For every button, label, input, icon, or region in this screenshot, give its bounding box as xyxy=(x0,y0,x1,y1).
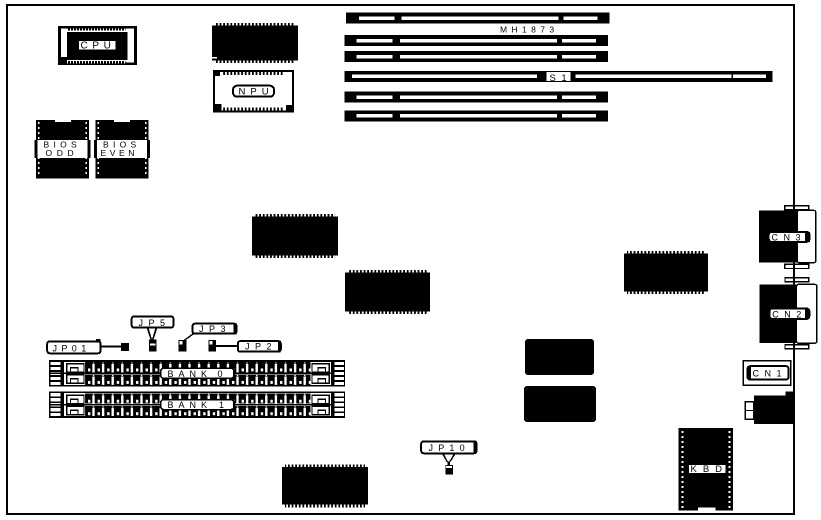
svg-text:BANK: BANK xyxy=(168,369,213,379)
svg-text:JP2: JP2 xyxy=(245,342,277,352)
svg-text:MH1873: MH1873 xyxy=(500,25,559,35)
svg-text:JP3: JP3 xyxy=(199,324,231,334)
svg-text:CN3: CN3 xyxy=(772,233,807,243)
svg-text:ODD: ODD xyxy=(46,148,79,158)
svg-text:JP10: JP10 xyxy=(429,443,470,453)
svg-text:CPU: CPU xyxy=(81,41,116,52)
svg-text:S1: S1 xyxy=(550,73,573,84)
svg-text:0: 0 xyxy=(218,369,223,379)
svg-text:KBD: KBD xyxy=(691,464,729,475)
svg-text:CN1: CN1 xyxy=(753,369,788,379)
svg-text:1: 1 xyxy=(219,400,224,410)
svg-text:JP01: JP01 xyxy=(53,343,91,353)
svg-text:BANK: BANK xyxy=(168,400,213,410)
svg-text:CN2: CN2 xyxy=(772,309,807,319)
svg-text:JP5: JP5 xyxy=(139,318,171,328)
svg-text:NPU: NPU xyxy=(239,86,274,97)
svg-text:EVEN: EVEN xyxy=(101,148,139,158)
